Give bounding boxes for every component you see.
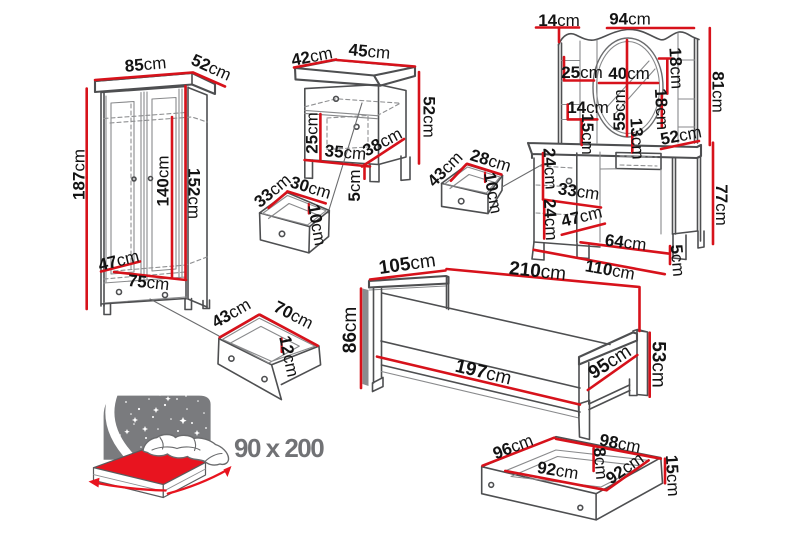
svg-text:187cm: 187cm bbox=[70, 149, 89, 200]
svg-text:5cm: 5cm bbox=[345, 169, 364, 201]
svg-text:105cm: 105cm bbox=[378, 250, 437, 279]
svg-text:15cm: 15cm bbox=[662, 454, 683, 497]
svg-text:33cm: 33cm bbox=[557, 179, 601, 204]
svg-text:8cm: 8cm bbox=[590, 447, 612, 481]
svg-text:55cm: 55cm bbox=[610, 89, 629, 131]
svg-text:45cm: 45cm bbox=[348, 40, 391, 63]
svg-text:18cm: 18cm bbox=[665, 47, 686, 90]
svg-text:43cm: 43cm bbox=[208, 295, 254, 332]
svg-text:85cm: 85cm bbox=[124, 53, 167, 76]
svg-text:95cm: 95cm bbox=[585, 341, 635, 384]
svg-text:12cm: 12cm bbox=[275, 334, 302, 379]
svg-text:15cm: 15cm bbox=[578, 113, 597, 155]
svg-text:77cm: 77cm bbox=[712, 184, 731, 226]
svg-text:110cm: 110cm bbox=[584, 256, 637, 283]
svg-text:25cm: 25cm bbox=[561, 63, 603, 82]
svg-text:210cm: 210cm bbox=[508, 258, 567, 285]
svg-text:14cm: 14cm bbox=[538, 11, 580, 30]
svg-text:96cm: 96cm bbox=[490, 431, 536, 464]
svg-text:152cm: 152cm bbox=[185, 168, 204, 219]
svg-text:52cm: 52cm bbox=[420, 96, 439, 138]
svg-text:90 x 200: 90 x 200 bbox=[234, 433, 324, 463]
svg-text:40cm: 40cm bbox=[608, 64, 650, 83]
svg-text:53cm: 53cm bbox=[648, 341, 669, 387]
svg-text:13cm: 13cm bbox=[626, 117, 647, 160]
svg-text:24cm: 24cm bbox=[539, 147, 560, 190]
svg-text:24cm: 24cm bbox=[540, 198, 561, 241]
svg-text:5cm: 5cm bbox=[667, 244, 689, 278]
svg-text:81cm: 81cm bbox=[709, 71, 728, 113]
svg-text:92cm: 92cm bbox=[536, 458, 580, 483]
svg-text:86cm: 86cm bbox=[340, 307, 361, 353]
svg-text:94cm: 94cm bbox=[609, 10, 651, 29]
svg-text:140cm: 140cm bbox=[154, 155, 173, 206]
svg-text:64cm: 64cm bbox=[604, 231, 648, 255]
svg-text:75cm: 75cm bbox=[127, 271, 170, 294]
svg-text:38cm: 38cm bbox=[360, 124, 406, 160]
svg-text:42cm: 42cm bbox=[290, 43, 334, 70]
svg-text:25cm: 25cm bbox=[303, 112, 322, 154]
svg-text:18cm: 18cm bbox=[651, 88, 672, 131]
